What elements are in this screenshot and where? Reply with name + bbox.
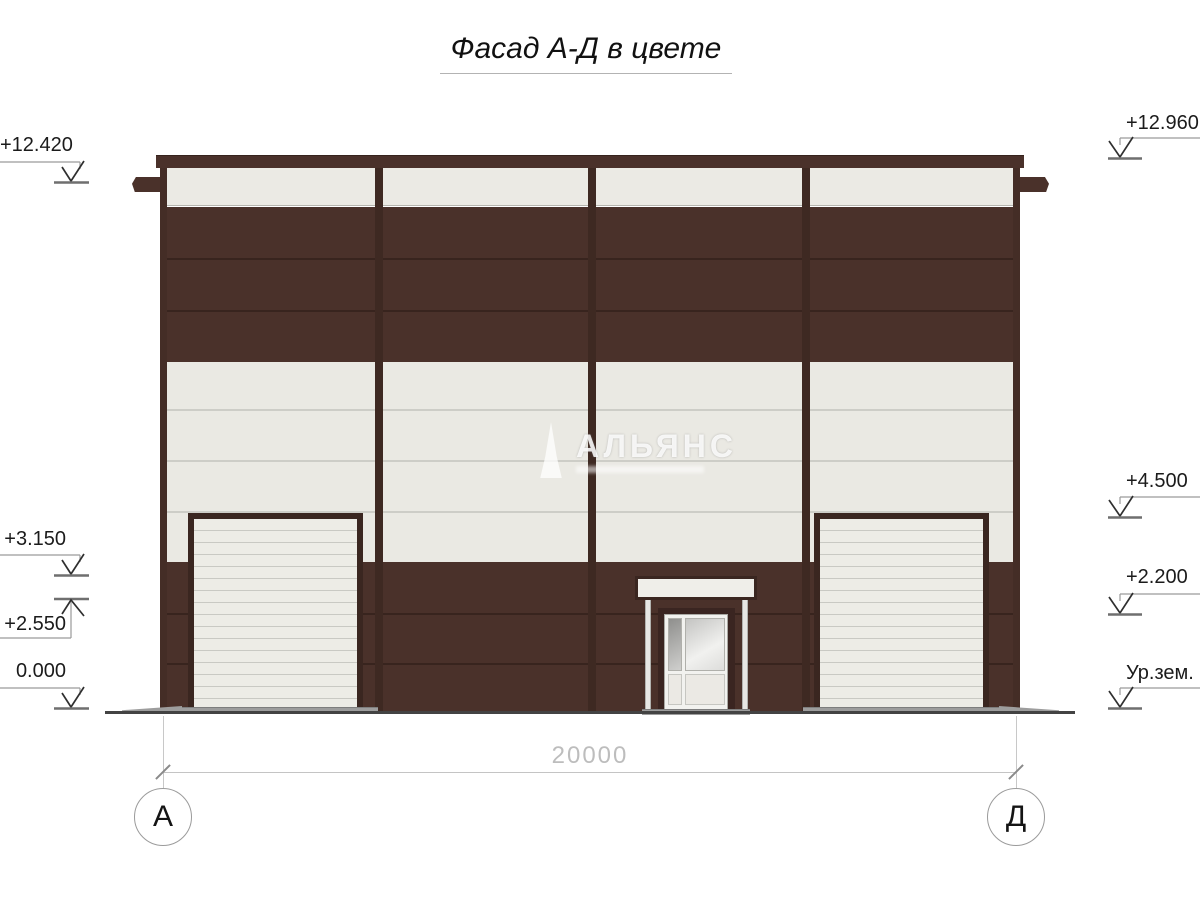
watermark: АЛЬЯНС	[528, 420, 708, 482]
elevation-label-right-3: +2.200	[1126, 566, 1200, 589]
sidelight-panel	[668, 674, 682, 705]
elevation-label-right-1: +12.960	[1126, 112, 1200, 135]
axis-bubble-a: А	[134, 788, 192, 846]
watermark-tower-icon	[533, 422, 569, 478]
parapet-cap	[156, 155, 1024, 168]
ground-line	[105, 711, 1075, 714]
elevation-symbol-down	[1108, 684, 1200, 714]
elevation-label-right-4: Ур.зем.	[1126, 662, 1200, 685]
drawing-canvas: Фасад А-Д в цвете	[0, 0, 1200, 900]
axis-bubble-d: Д	[987, 788, 1045, 846]
gutter-stub-left	[132, 177, 160, 192]
elevation-label-right-2: +4.500	[1126, 470, 1200, 493]
elevation-symbol-down	[0, 158, 94, 188]
gutter-stub-right	[1020, 177, 1049, 192]
elevation-symbol-down	[0, 684, 94, 714]
elevation-symbol-down	[1108, 134, 1200, 164]
door-panel	[685, 674, 725, 705]
entrance-canopy	[635, 576, 757, 600]
elevation-symbol-down	[0, 551, 94, 581]
elevation-label-left-4: 0.000	[0, 660, 66, 683]
sidelight-glass	[668, 618, 682, 671]
canopy-post-right	[742, 600, 748, 711]
roller-door-left	[188, 513, 363, 713]
elevation-symbol-up	[0, 596, 94, 642]
bay-mullion	[802, 168, 810, 713]
corner-column-right	[1013, 168, 1020, 713]
axis-letter-d: Д	[1006, 800, 1026, 833]
dimension-line	[163, 772, 1017, 773]
entrance-door	[664, 614, 728, 711]
canopy-post-left	[645, 600, 651, 711]
elevation-label-left-2: +3.150	[0, 528, 66, 551]
dimension-value: 20000	[520, 742, 660, 770]
watermark-text: АЛЬЯНС	[576, 428, 737, 465]
elevation-symbol-down	[1108, 590, 1200, 620]
extension-line-right	[1016, 716, 1017, 790]
elevation-symbol-down	[1108, 493, 1200, 523]
bay-mullion	[375, 168, 383, 713]
watermark-tagline-blur	[576, 466, 704, 473]
extension-line-left	[163, 716, 164, 790]
corner-column-left	[160, 168, 167, 713]
door-glass	[685, 618, 725, 671]
drawing-title: Фасад А-Д в цвете	[440, 32, 732, 74]
axis-letter-a: А	[153, 800, 173, 833]
elevation-label-left-1: +12.420	[0, 134, 66, 157]
roller-door-right	[814, 513, 989, 713]
